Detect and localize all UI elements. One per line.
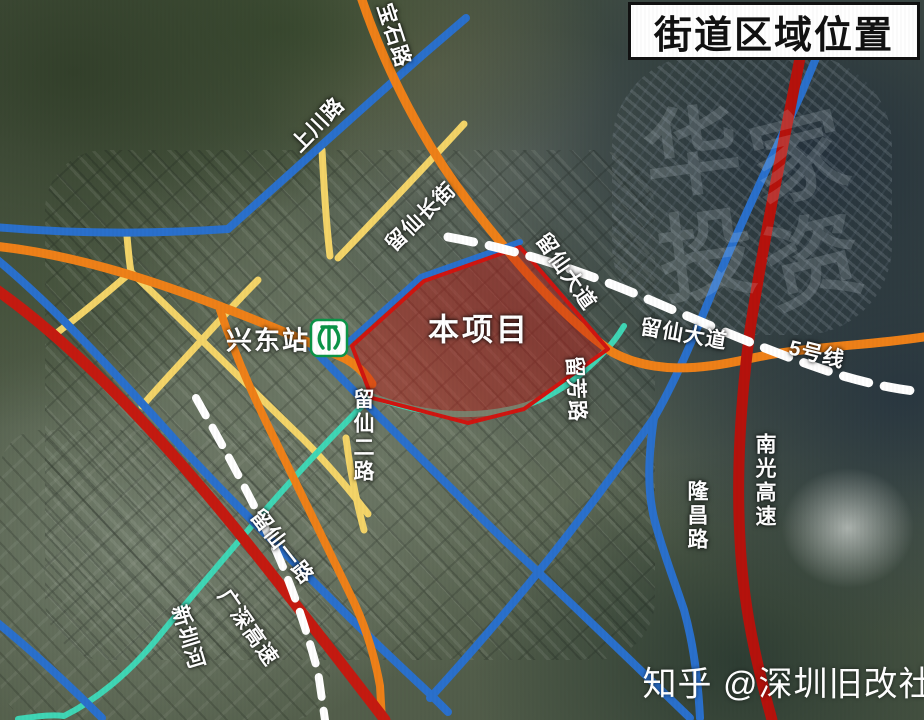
road-label-nanguang-expressway: 南光高速 — [749, 433, 779, 529]
faint-watermark-char: 投 — [648, 198, 767, 317]
project-area-label: 本项目 — [428, 305, 530, 350]
faint-watermark-char: 华 — [633, 94, 752, 213]
zhihu-watermark: 知乎 @深圳旧改社 — [643, 657, 924, 706]
faint-watermark: 华 家 投 资 — [633, 77, 888, 336]
shenzhen-metro-logo — [311, 320, 347, 356]
road-label-liufang: 留芳路 — [560, 355, 593, 422]
road-label-liuxian-2nd: 留仙二路 — [347, 388, 377, 484]
map-title: 街道区域位置 — [654, 4, 894, 59]
station-label-xingdong: 兴东站 — [226, 321, 310, 358]
map-title-box: 街道区域位置 — [628, 2, 920, 60]
faint-watermark-char: 资 — [750, 199, 877, 326]
road-label-longchang: 隆昌路 — [681, 480, 711, 552]
